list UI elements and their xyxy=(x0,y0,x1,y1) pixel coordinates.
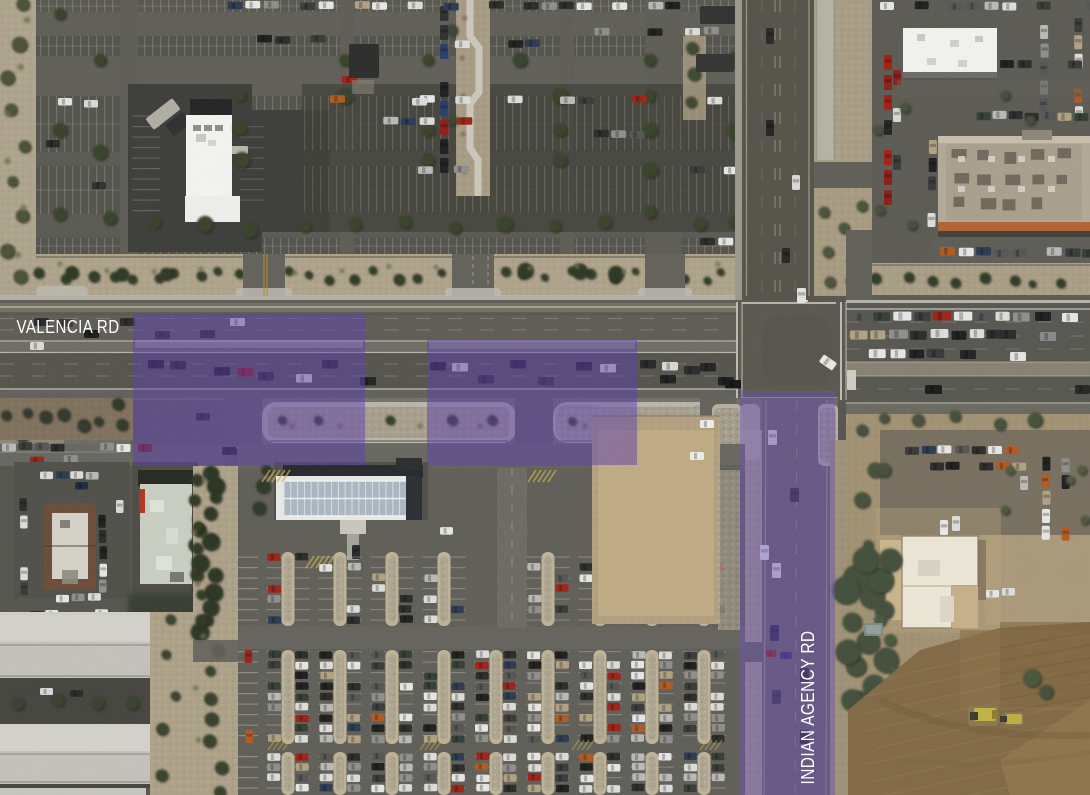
svg-text:INDIAN AGENCY RD: INDIAN AGENCY RD xyxy=(798,631,818,785)
svg-text:VALENCIA RD: VALENCIA RD xyxy=(17,317,120,337)
